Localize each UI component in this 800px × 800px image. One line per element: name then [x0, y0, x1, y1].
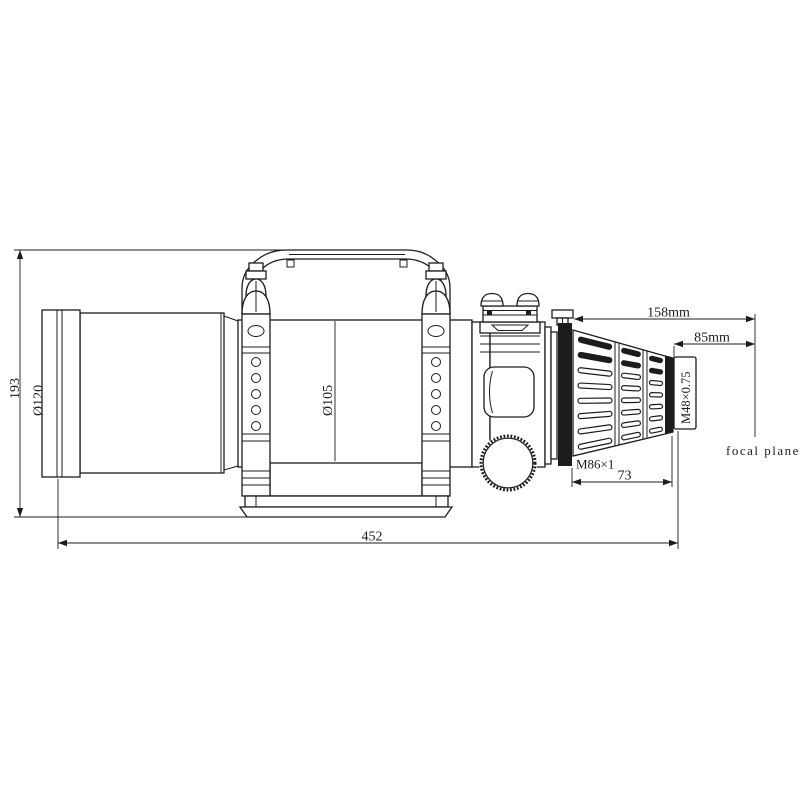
tube-diameter-label: Ø105	[321, 385, 336, 416]
dovetail-bar	[240, 507, 452, 517]
focal-plane-annotation: focal plane	[726, 314, 800, 458]
shoe-lock-dot-right	[526, 311, 531, 316]
dew-shield	[80, 313, 238, 473]
drawtube-length-label: 73	[618, 469, 632, 484]
focal-plane-label: focal plane	[726, 443, 800, 458]
taper-top	[224, 316, 238, 321]
dimension-85mm: 85mm	[674, 331, 755, 358]
overall-length-label: 452	[362, 530, 383, 545]
tension-screw	[552, 310, 573, 325]
focuser-flange-2	[551, 332, 557, 459]
bottom-rail	[270, 463, 422, 496]
thumbscrew-right	[517, 294, 539, 307]
finder-shoe	[480, 294, 540, 334]
focuser-window	[484, 367, 534, 417]
flange-to-focal-plane-label: 158mm	[647, 306, 690, 321]
front-diameter-label: Ø120	[32, 385, 47, 416]
rear-thread-label: M86×1	[576, 457, 614, 472]
handle-corner-block-left	[287, 260, 294, 267]
tube-ring-right	[422, 263, 450, 496]
overall-height-label: 193	[8, 378, 23, 399]
cone-black-band	[665, 356, 673, 434]
focuser-assembly	[472, 294, 573, 493]
focuser-flange-1	[545, 327, 551, 464]
finder-shoe-base	[480, 322, 540, 333]
thumbscrew-left	[481, 294, 503, 307]
camera-thread-label: M48×0.75	[679, 371, 693, 424]
focus-knob	[479, 434, 537, 492]
handle-corner-block-right	[400, 260, 407, 267]
carry-handle	[242, 250, 450, 314]
front-lens-cell	[42, 310, 80, 477]
taper-bottom	[224, 466, 238, 470]
shoe-lock-dot-left	[487, 311, 492, 316]
m86-black-ring	[558, 323, 572, 466]
dovetail-plate	[240, 496, 452, 517]
m48-to-focal-plane-label: 85mm	[694, 331, 730, 346]
dimension-158mm: 158mm	[574, 306, 755, 323]
ring-clamp-screw	[249, 263, 263, 271]
telescope-technical-drawing: 193 452 Ø120 Ø105 158mm 85mm	[0, 0, 800, 800]
tube-ring-left	[242, 263, 270, 496]
